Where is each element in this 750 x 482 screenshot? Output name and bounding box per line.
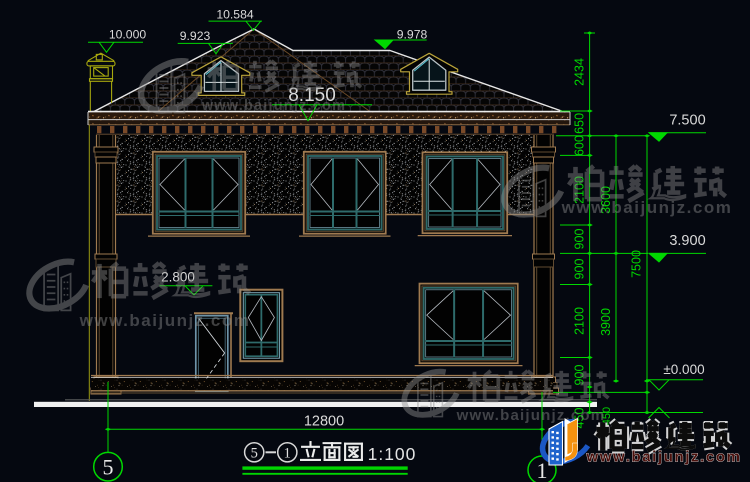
svg-text:3.900: 3.900 [669, 233, 705, 249]
svg-text:9.923: 9.923 [180, 29, 211, 43]
svg-text:1: 1 [537, 458, 548, 482]
svg-text:12800: 12800 [304, 414, 344, 430]
svg-text:www.baijunjz.com: www.baijunjz.com [585, 449, 741, 466]
svg-text:10.584: 10.584 [216, 7, 253, 21]
svg-text:www.baijunjz.com: www.baijunjz.com [456, 407, 606, 424]
svg-text:900: 900 [573, 259, 587, 280]
svg-text:1:100: 1:100 [368, 444, 417, 464]
svg-text:3900: 3900 [599, 308, 613, 336]
svg-text:10.000: 10.000 [109, 28, 146, 42]
svg-text:www.baijunjz.com: www.baijunjz.com [201, 98, 346, 114]
svg-text:2434: 2434 [573, 58, 587, 86]
svg-text:900: 900 [573, 229, 587, 250]
svg-text:600: 600 [573, 135, 587, 156]
svg-text:2100: 2100 [573, 307, 587, 335]
svg-text:5: 5 [103, 455, 114, 480]
svg-text:7500: 7500 [630, 250, 644, 278]
svg-text:9.978: 9.978 [397, 28, 428, 42]
svg-text:www.baijunjz.com: www.baijunjz.com [79, 311, 251, 330]
svg-text:±0.000: ±0.000 [663, 362, 704, 377]
svg-text:1: 1 [284, 445, 291, 461]
svg-text:www.baijunjz.com: www.baijunjz.com [561, 198, 733, 217]
svg-text:650: 650 [573, 113, 587, 134]
svg-text:7.500: 7.500 [669, 113, 705, 129]
svg-text:5: 5 [251, 445, 258, 461]
